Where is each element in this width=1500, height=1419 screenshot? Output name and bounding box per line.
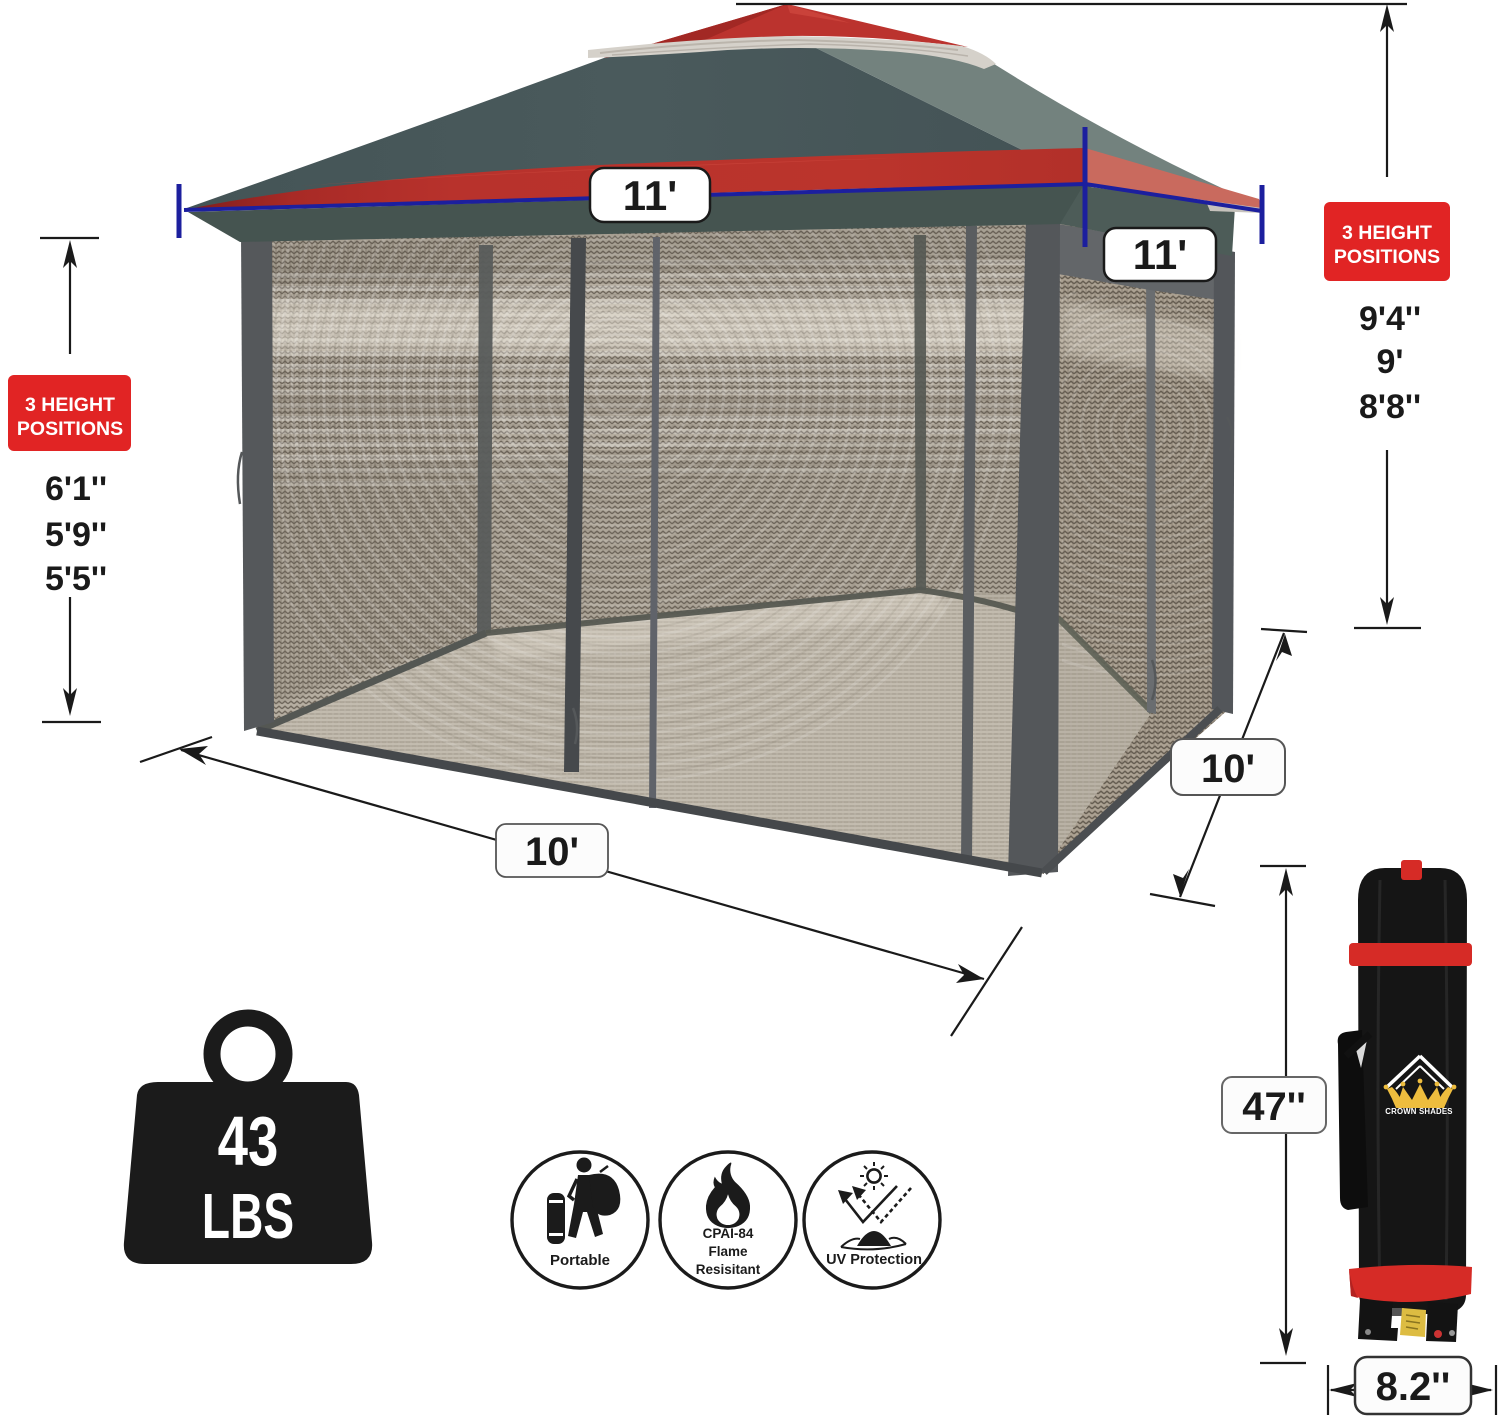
svg-text:5'5'': 5'5'' xyxy=(45,560,107,598)
svg-text:CROWN SHADES: CROWN SHADES xyxy=(1385,1107,1452,1116)
svg-text:Resisitant: Resisitant xyxy=(696,1262,761,1277)
svg-text:43: 43 xyxy=(218,1103,279,1181)
svg-text:Portable: Portable xyxy=(550,1252,610,1269)
svg-text:11': 11' xyxy=(623,172,677,219)
svg-text:10': 10' xyxy=(525,830,579,874)
svg-text:6'1'': 6'1'' xyxy=(45,470,107,508)
svg-text:Flame: Flame xyxy=(708,1244,748,1259)
svg-text:CPAI-84: CPAI-84 xyxy=(703,1226,754,1241)
svg-text:5'9'': 5'9'' xyxy=(45,516,107,554)
svg-text:10': 10' xyxy=(1201,747,1255,791)
svg-text:9': 9' xyxy=(1377,343,1404,381)
svg-text:POSITIONS: POSITIONS xyxy=(17,418,123,440)
svg-text:POSITIONS: POSITIONS xyxy=(1334,246,1440,268)
svg-text:3 HEIGHT: 3 HEIGHT xyxy=(25,394,115,416)
svg-text:UV Protection: UV Protection xyxy=(826,1252,922,1268)
svg-text:11': 11' xyxy=(1133,231,1187,278)
svg-text:8.2'': 8.2'' xyxy=(1376,1365,1451,1409)
svg-text:9'4'': 9'4'' xyxy=(1359,300,1421,338)
svg-text:8'8'': 8'8'' xyxy=(1359,388,1421,426)
svg-text:LBS: LBS xyxy=(202,1181,294,1252)
svg-text:47'': 47'' xyxy=(1242,1085,1306,1129)
svg-text:3 HEIGHT: 3 HEIGHT xyxy=(1342,222,1432,244)
